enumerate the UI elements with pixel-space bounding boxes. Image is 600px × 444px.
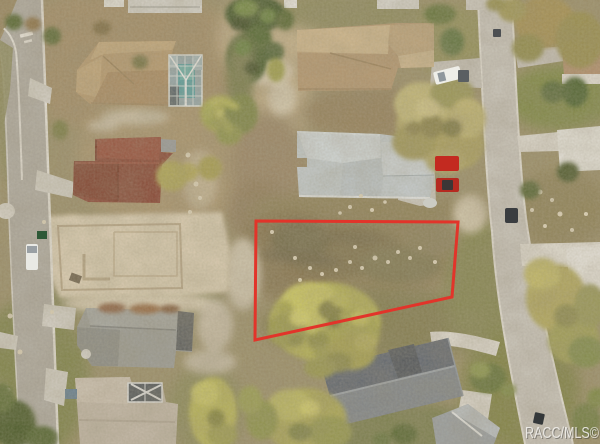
svg-text:RACC/MLS©: RACC/MLS© <box>525 425 599 442</box>
